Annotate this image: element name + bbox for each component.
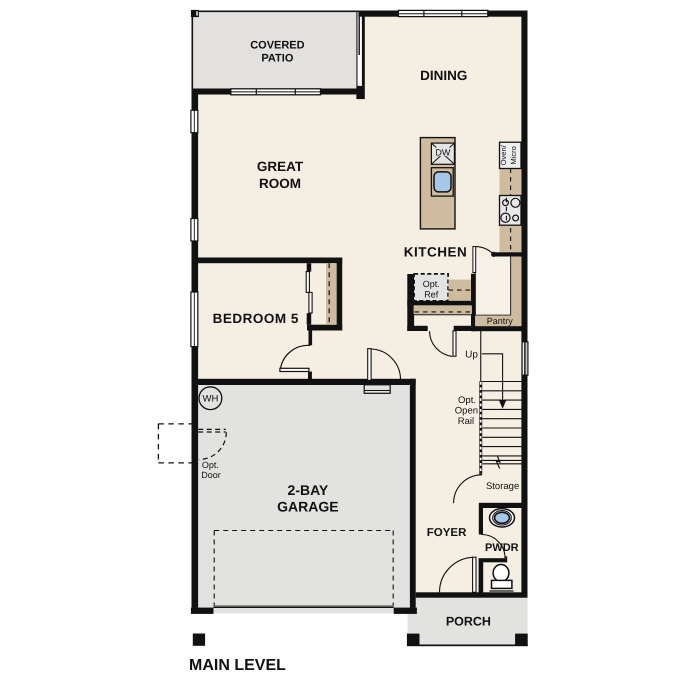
svg-text:COVERED: COVERED — [250, 39, 304, 51]
svg-text:2-BAY: 2-BAY — [288, 482, 329, 498]
svg-text:MAIN LEVEL: MAIN LEVEL — [189, 657, 286, 674]
svg-text:GREAT: GREAT — [257, 159, 304, 174]
svg-text:DW: DW — [435, 148, 450, 158]
svg-text:Door: Door — [201, 470, 221, 480]
svg-text:DINING: DINING — [420, 68, 467, 83]
svg-text:Up: Up — [465, 349, 478, 360]
svg-text:Opt.: Opt. — [458, 395, 476, 406]
svg-text:PATIO: PATIO — [261, 52, 293, 64]
svg-text:PWDR: PWDR — [485, 542, 519, 554]
svg-text:Opt.: Opt. — [202, 460, 219, 470]
svg-text:ROOM: ROOM — [259, 176, 301, 191]
svg-text:Rail: Rail — [458, 416, 474, 427]
svg-text:Oven/: Oven/ — [499, 144, 508, 165]
svg-text:Micro: Micro — [509, 146, 518, 164]
svg-text:KITCHEN: KITCHEN — [404, 245, 468, 260]
svg-text:Open: Open — [455, 406, 478, 417]
svg-text:FOYER: FOYER — [427, 527, 467, 539]
svg-text:PORCH: PORCH — [446, 615, 491, 629]
svg-text:Ref: Ref — [424, 289, 439, 299]
svg-text:GARAGE: GARAGE — [277, 499, 338, 515]
svg-text:Pantry: Pantry — [487, 316, 514, 326]
svg-text:BEDROOM 5: BEDROOM 5 — [213, 311, 299, 326]
svg-text:WH: WH — [202, 394, 218, 405]
svg-text:Opt.: Opt. — [423, 279, 440, 289]
svg-text:Storage: Storage — [486, 481, 519, 492]
